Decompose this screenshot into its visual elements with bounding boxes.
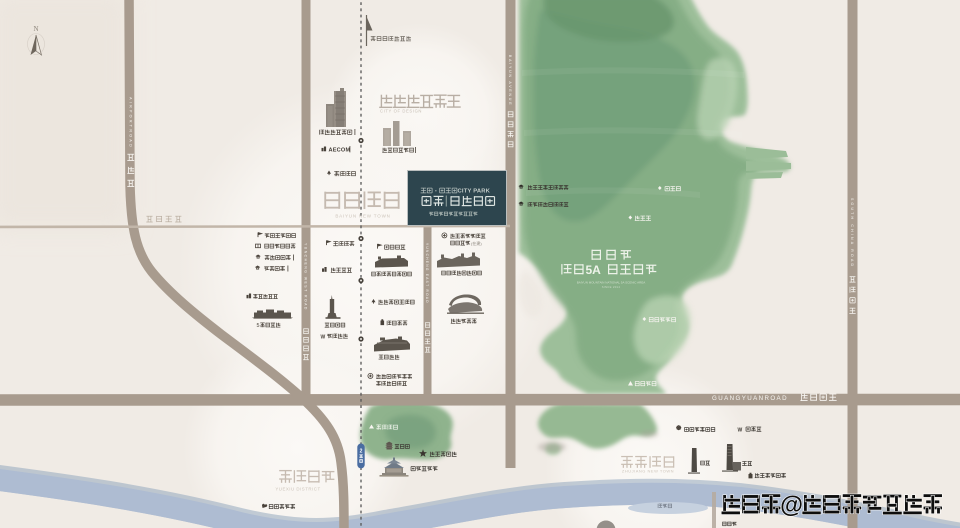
svg-text:AECOM: AECOM [329,148,351,154]
svg-text:AIRPORTROAD: AIRPORTROAD [128,97,132,149]
svg-text:ZHUJIANG NEW TOWN: ZHUJIANG NEW TOWN [622,469,674,474]
svg-text:@: @ [780,492,803,518]
svg-text:BAIYUN AVENUE: BAIYUN AVENUE [508,55,512,106]
svg-text:W: W [738,428,743,434]
svg-text:CITY OF DESIGN: CITY OF DESIGN [380,109,422,114]
svg-text:BAIYUN NEW TOWN: BAIYUN NEW TOWN [335,214,390,219]
svg-text:5: 5 [257,323,260,329]
svg-text:SINCE 2014: SINCE 2014 [602,285,621,289]
svg-text:YUEXIU DISTRICT: YUEXIU DISTRICT [275,487,320,492]
svg-text:BAIYUN MOUNTAIN NATIONAL 5A SC: BAIYUN MOUNTAIN NATIONAL 5A SCENIC AREA [577,281,646,285]
svg-text:SOUTH CHINA ROAD: SOUTH CHINA ROAD [850,198,854,268]
svg-text:(在建): (在建) [471,240,482,246]
svg-text:5A: 5A [586,263,602,277]
svg-text:CITY PARK: CITY PARK [458,189,491,195]
svg-text:N: N [33,25,38,33]
svg-text:YUNCHENG WEST ROAD: YUNCHENG WEST ROAD [303,243,307,311]
svg-text:GUANGYUANROAD: GUANGYUANROAD [712,395,788,402]
svg-text:YUNCHENG EAST ROAD: YUNCHENG EAST ROAD [425,243,429,304]
svg-text:2: 2 [360,449,363,455]
svg-text:W: W [321,335,326,341]
